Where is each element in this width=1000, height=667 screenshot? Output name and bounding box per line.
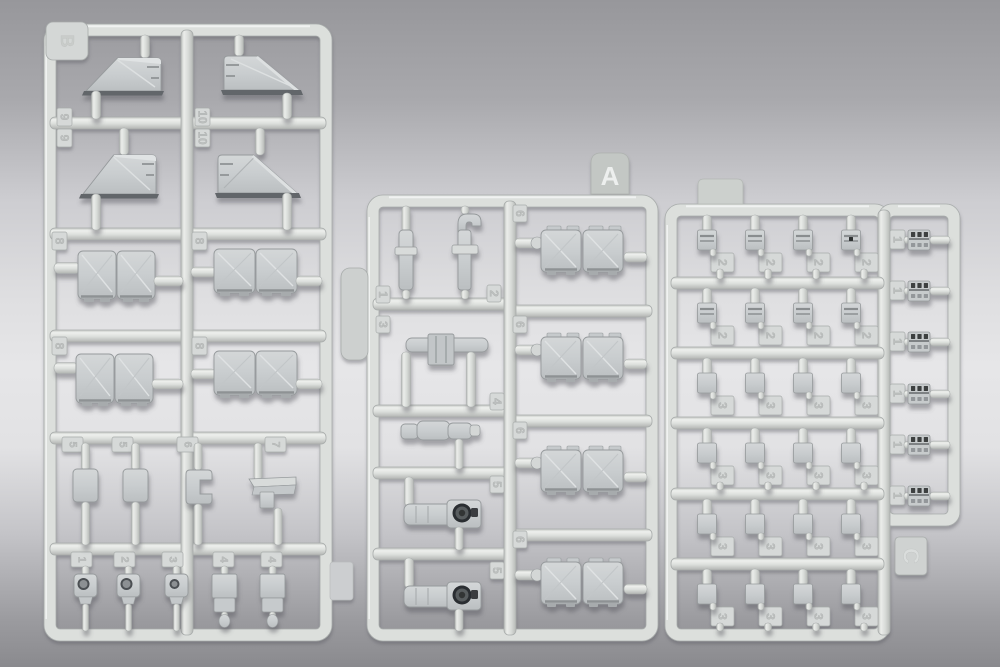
- svg-text:3: 3: [716, 543, 730, 550]
- svg-text:1: 1: [376, 291, 390, 298]
- svg-text:A: A: [601, 161, 620, 191]
- svg-text:3: 3: [812, 472, 826, 479]
- svg-text:5: 5: [490, 567, 504, 574]
- svg-text:8: 8: [53, 238, 67, 245]
- svg-text:7: 7: [270, 441, 282, 447]
- svg-text:2: 2: [812, 332, 826, 339]
- svg-text:6: 6: [513, 321, 527, 328]
- svg-text:2: 2: [716, 332, 730, 339]
- svg-text:3: 3: [764, 402, 778, 409]
- svg-text:2: 2: [764, 332, 778, 339]
- svg-text:3: 3: [716, 472, 730, 479]
- svg-text:2: 2: [716, 259, 730, 266]
- svg-text:6: 6: [513, 210, 527, 217]
- svg-text:1: 1: [891, 441, 905, 448]
- svg-text:9: 9: [58, 114, 72, 121]
- svg-text:2: 2: [119, 556, 131, 562]
- svg-text:1: 1: [891, 338, 905, 345]
- svg-text:6: 6: [513, 427, 527, 434]
- svg-text:3: 3: [716, 402, 730, 409]
- svg-text:1: 1: [891, 492, 905, 499]
- svg-text:3: 3: [860, 543, 874, 550]
- svg-text:1: 1: [76, 556, 88, 562]
- svg-text:5: 5: [490, 481, 504, 488]
- svg-text:9: 9: [58, 135, 72, 142]
- svg-text:3: 3: [860, 613, 874, 620]
- svg-text:8: 8: [53, 343, 67, 350]
- svg-text:1: 1: [891, 287, 905, 294]
- svg-text:2: 2: [860, 332, 874, 339]
- svg-text:C: C: [899, 548, 924, 564]
- svg-text:3: 3: [764, 543, 778, 550]
- svg-text:6: 6: [182, 441, 194, 447]
- svg-text:2: 2: [764, 259, 778, 266]
- svg-text:2: 2: [860, 259, 874, 266]
- svg-text:3: 3: [167, 556, 179, 562]
- svg-text:3: 3: [716, 613, 730, 620]
- svg-text:2: 2: [812, 259, 826, 266]
- svg-text:3: 3: [812, 543, 826, 550]
- svg-text:8: 8: [193, 343, 207, 350]
- svg-text:8: 8: [193, 238, 207, 245]
- svg-text:3: 3: [860, 472, 874, 479]
- svg-text:1: 1: [891, 236, 905, 243]
- svg-text:1: 1: [891, 390, 905, 397]
- svg-text:3: 3: [764, 613, 778, 620]
- svg-text:5: 5: [67, 441, 79, 447]
- svg-text:3: 3: [812, 402, 826, 409]
- svg-text:5: 5: [117, 441, 129, 447]
- svg-text:10: 10: [196, 131, 210, 145]
- svg-text:4: 4: [266, 556, 278, 563]
- svg-text:3: 3: [764, 472, 778, 479]
- svg-text:10: 10: [196, 110, 210, 124]
- svg-text:3: 3: [812, 613, 826, 620]
- svg-text:3: 3: [376, 321, 390, 328]
- svg-text:3: 3: [860, 402, 874, 409]
- svg-text:2: 2: [487, 290, 501, 297]
- svg-text:B: B: [57, 35, 77, 48]
- svg-text:4: 4: [490, 398, 504, 405]
- svg-text:6: 6: [513, 536, 527, 543]
- svg-text:4: 4: [218, 556, 230, 563]
